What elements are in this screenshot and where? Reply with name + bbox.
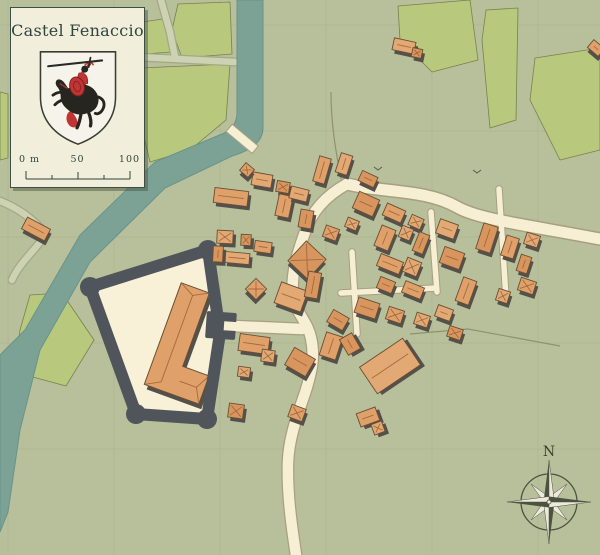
knight-crest-icon [34,47,122,149]
building [475,223,502,258]
building [515,254,535,278]
building [260,349,278,367]
castle-tower [80,277,100,297]
scale-label-end: 100 [119,154,140,165]
building [494,288,513,307]
scale-ruler [22,167,134,180]
building [213,187,252,210]
building [446,326,467,345]
building [243,278,269,304]
map-title-card: Castel Fenaccio [10,7,145,188]
building [318,332,346,364]
building [438,246,468,273]
building [384,306,407,328]
scale-bar: 0 m 50 100 [11,154,144,180]
building [224,251,253,268]
building [253,240,275,257]
castle-tower [126,404,146,424]
castle [80,240,240,429]
castle-gate-road [233,326,302,329]
castle-gatehouse [205,311,239,340]
building [325,309,352,335]
building [241,234,255,249]
compass-north-label: N [543,444,555,460]
building [216,230,236,247]
building [516,277,539,299]
building [250,172,276,192]
building [400,281,427,304]
castle-tower [197,409,217,429]
building [412,312,433,332]
building [321,225,342,245]
building [373,225,399,255]
map-title: Castel Fenaccio [11,21,144,40]
building [454,277,480,310]
building [433,305,456,326]
scale-label-mid: 50 [70,154,84,165]
building [237,366,254,381]
compass-rose-icon: N [507,444,591,544]
building [339,331,364,358]
building [381,203,409,227]
building [312,156,335,188]
medieval-town-map: N Castel Fenaccio [0,0,600,555]
building [434,219,461,244]
building [359,337,424,397]
building [375,253,406,278]
scale-label-start: 0 m [19,154,40,165]
building [401,257,425,281]
building [227,403,247,423]
building [343,217,362,235]
